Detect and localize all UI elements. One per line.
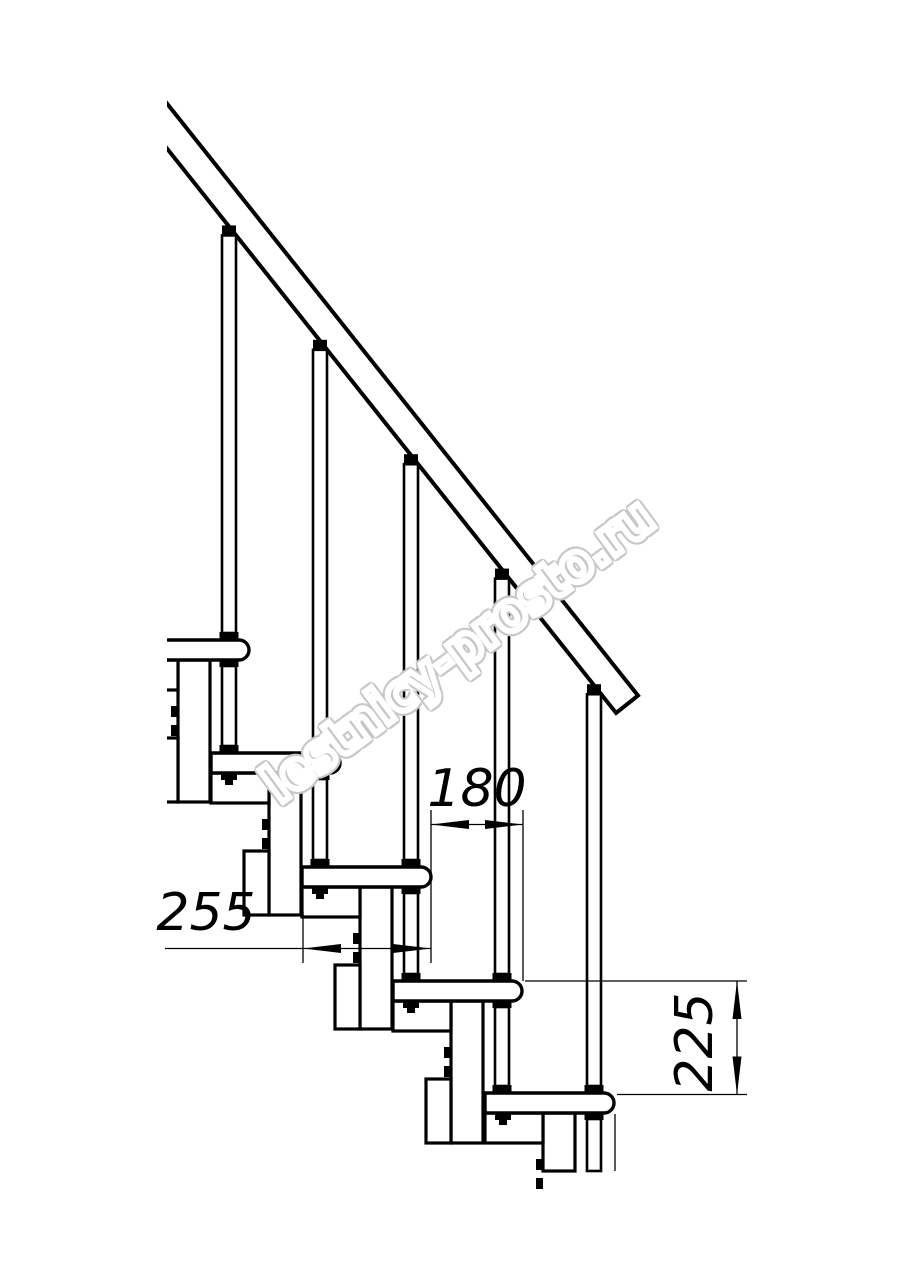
baluster-foot	[311, 859, 330, 867]
module-column	[543, 1113, 575, 1171]
baluster-lower	[222, 666, 236, 746]
bolt	[353, 933, 360, 944]
dim-label-step-rise: 225	[665, 992, 725, 1091]
baluster-foot	[402, 973, 421, 981]
bolt	[407, 1008, 415, 1013]
baluster	[222, 235, 236, 633]
bolt	[312, 888, 328, 894]
bolt	[262, 819, 269, 830]
bolt	[353, 952, 360, 963]
baluster	[587, 694, 601, 1086]
arrowhead	[733, 1057, 742, 1095]
tread	[393, 981, 522, 1001]
baluster-foot	[493, 973, 512, 981]
arrowhead	[431, 820, 469, 829]
baluster-lower	[495, 1007, 509, 1086]
bolt	[536, 1159, 543, 1170]
module-column	[451, 1001, 483, 1143]
bolt	[316, 894, 324, 899]
tread	[302, 867, 431, 887]
baluster-lower	[587, 1119, 601, 1171]
bolt	[221, 774, 237, 780]
bolt	[403, 1002, 419, 1008]
baluster-foot	[220, 632, 239, 640]
technical-drawing-canvas: 255 180 225 lestnicy-prosto.ru lestnicy-…	[0, 0, 914, 1280]
bolt	[262, 838, 269, 849]
baluster-foot	[493, 1085, 512, 1093]
bolt	[444, 1047, 451, 1058]
bolt	[444, 1066, 451, 1077]
baluster-foot	[585, 1085, 604, 1093]
dim-label-step-run: 180	[427, 759, 526, 819]
baluster-foot	[402, 859, 421, 867]
bolt	[499, 1120, 507, 1125]
tread-bracket	[302, 887, 360, 917]
tread	[485, 1093, 614, 1113]
module-side-plate	[426, 1079, 451, 1143]
bolt	[495, 1114, 511, 1120]
module-side-plate	[335, 965, 360, 1029]
arrowhead	[733, 981, 742, 1019]
tread-bracket	[393, 1001, 451, 1031]
arrowhead	[303, 944, 341, 953]
dim-label-tread-depth: 255	[156, 883, 255, 943]
module-column	[178, 660, 210, 802]
baluster-foot	[220, 745, 239, 753]
baluster-lower	[404, 893, 418, 974]
left-crop-mask	[0, 0, 167, 1280]
bolt	[171, 725, 178, 736]
bolt	[171, 706, 178, 717]
bolt	[536, 1178, 543, 1189]
baluster	[313, 350, 327, 746]
module-column	[360, 887, 392, 1029]
bolt	[225, 780, 233, 785]
tread-bracket	[485, 1113, 543, 1143]
staircase-side-view-drawing: 255 180 225 lestnicy-prosto.ru lestnicy-…	[0, 0, 914, 1280]
